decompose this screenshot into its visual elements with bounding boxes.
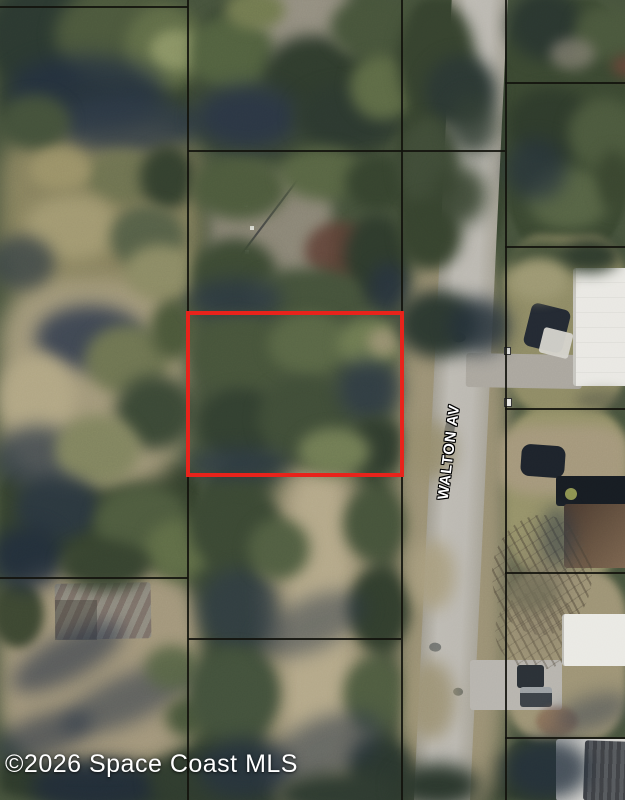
parcel-line (505, 408, 625, 410)
mls-watermark: ©2026 Space Coast MLS (5, 750, 298, 779)
aerial-map-photo: WALTON AV ©2026 Space Coast MLS (0, 0, 625, 800)
parcel-line (505, 246, 625, 248)
parcel-line (188, 150, 505, 152)
parcel-line (505, 737, 625, 739)
parcel-line (0, 577, 188, 579)
property-boundary (186, 311, 404, 477)
parcel-line (505, 82, 625, 84)
parcel-line (0, 6, 188, 8)
parcel-line (505, 572, 625, 574)
parcel-line (188, 638, 401, 640)
parcel-line (505, 0, 507, 800)
